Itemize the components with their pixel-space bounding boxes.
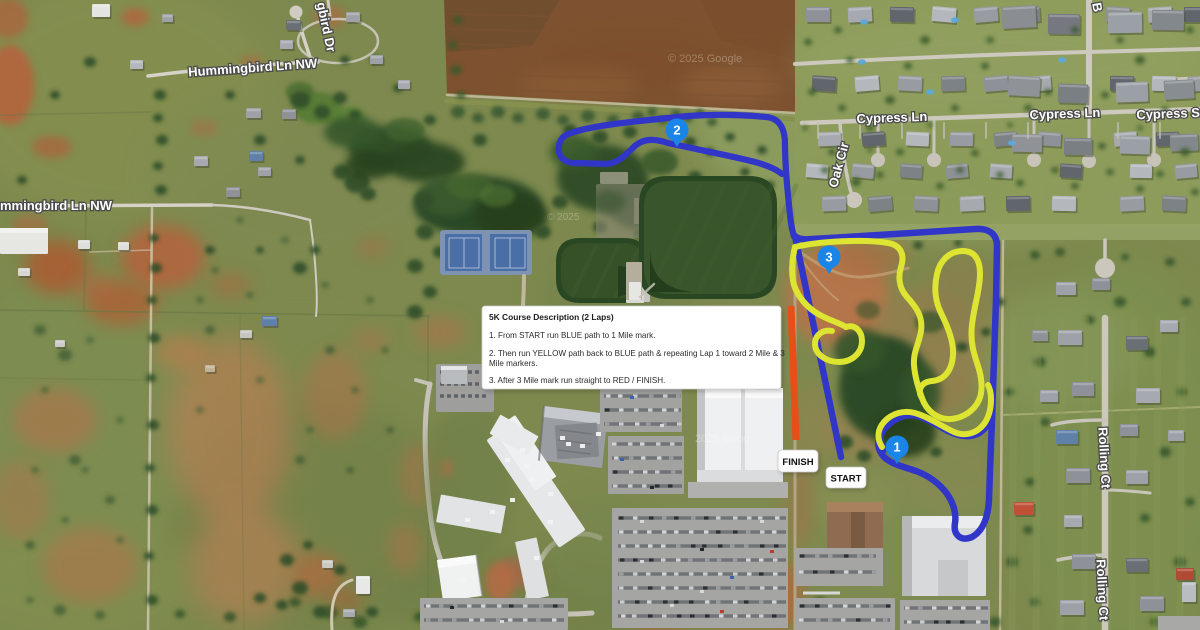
svg-text:5K Course Description (2 Laps): 5K Course Description (2 Laps) [489,312,614,322]
svg-text:© 2025: © 2025 [547,212,580,223]
svg-text:FINISH: FINISH [782,457,813,468]
svg-text:3: 3 [825,250,832,265]
svg-text:Cypress Ln: Cypress Ln [1029,105,1100,122]
svg-text:Mile markers.: Mile markers. [489,359,538,368]
svg-text:Cypress Ln: Cypress Ln [856,109,927,126]
svg-text:1: 1 [893,440,900,455]
svg-text:2. Then run YELLOW path back t: 2. Then run YELLOW path back to BLUE pat… [489,349,785,358]
svg-text:© 2025 Google: © 2025 Google [668,53,742,65]
svg-text:3. After 3 Mile mark run strai: 3. After 3 Mile mark run straight to RED… [489,376,665,385]
svg-text:mmingbird Ln NW: mmingbird Ln NW [0,198,113,213]
svg-text:2: 2 [673,123,680,138]
svg-text:1. From START run BLUE path to: 1. From START run BLUE path to 1 Mile ma… [489,331,655,340]
svg-text:Cypress S: Cypress S [1136,105,1200,122]
svg-text:START: START [831,474,862,485]
svg-text:2025 Goog: 2025 Goog [695,433,749,445]
